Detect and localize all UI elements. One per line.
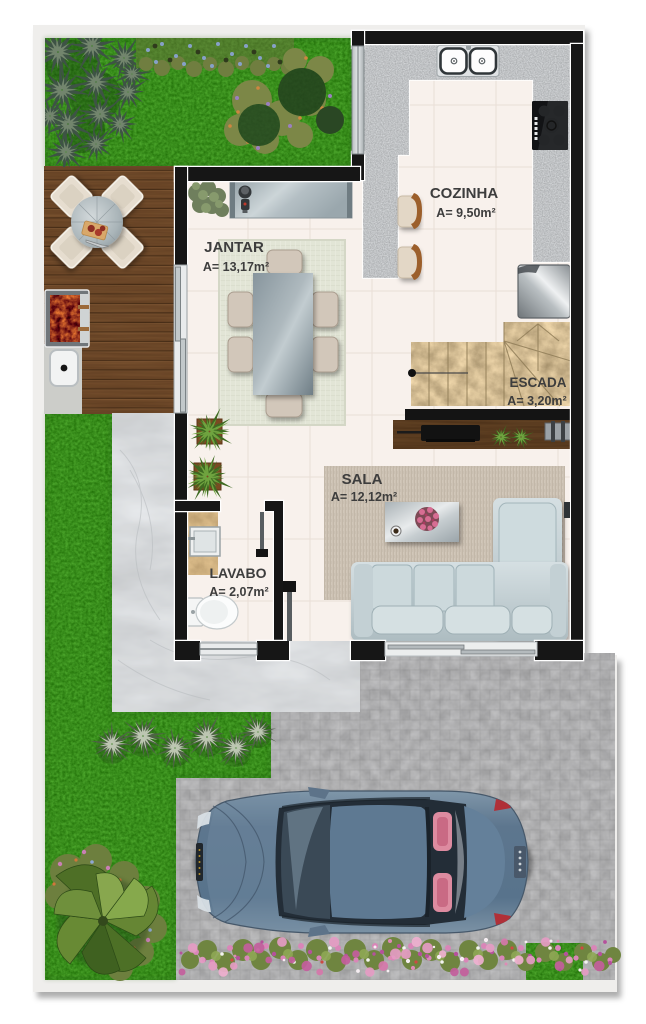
svg-text:ESCADA: ESCADA xyxy=(509,375,566,390)
svg-text:JANTAR: JANTAR xyxy=(204,239,264,256)
svg-text:A= 9,50m²: A= 9,50m² xyxy=(436,206,495,220)
svg-text:A= 12,12m²: A= 12,12m² xyxy=(331,490,397,504)
svg-text:A= 2,07m²: A= 2,07m² xyxy=(209,585,268,599)
svg-text:COZINHA: COZINHA xyxy=(430,185,498,202)
svg-text:A= 13,17m²: A= 13,17m² xyxy=(203,260,269,274)
svg-text:LAVABO: LAVABO xyxy=(209,565,266,581)
svg-text:A= 3,20m²: A= 3,20m² xyxy=(507,394,566,408)
svg-text:SALA: SALA xyxy=(342,471,383,488)
